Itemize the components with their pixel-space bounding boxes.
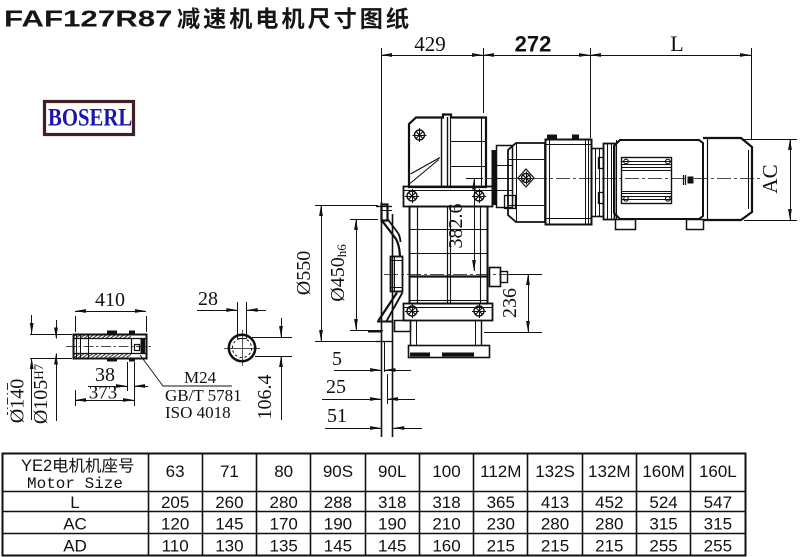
svg-text:318: 318	[378, 493, 406, 512]
svg-text:236: 236	[499, 288, 521, 318]
svg-text:160M: 160M	[642, 462, 685, 481]
svg-text:280: 280	[595, 515, 623, 534]
svg-text:365: 365	[487, 493, 515, 512]
svg-text:170: 170	[269, 515, 297, 534]
svg-text:160L: 160L	[699, 462, 737, 481]
svg-text:288: 288	[324, 493, 352, 512]
svg-text:120: 120	[161, 515, 189, 534]
svg-text:413: 413	[541, 493, 569, 512]
svg-text:280: 280	[541, 515, 569, 534]
svg-text:112M: 112M	[480, 462, 521, 481]
svg-text:429: 429	[414, 32, 446, 56]
svg-text:ISO 4018: ISO 4018	[165, 403, 231, 422]
svg-text:145: 145	[378, 537, 406, 556]
svg-text:132S: 132S	[535, 462, 575, 481]
svg-text:BOSERL: BOSERL	[48, 104, 132, 131]
svg-text:80: 80	[274, 462, 293, 481]
svg-text:145: 145	[215, 515, 243, 534]
svg-text:547: 547	[704, 493, 732, 512]
svg-text:M24: M24	[184, 368, 217, 387]
svg-text:190: 190	[378, 515, 406, 534]
svg-text:373: 373	[89, 383, 118, 404]
svg-text:Ø550: Ø550	[293, 251, 315, 295]
svg-text:280: 280	[269, 493, 297, 512]
svg-text:110: 110	[162, 537, 189, 556]
svg-text:190: 190	[324, 515, 352, 534]
svg-text:215: 215	[487, 537, 515, 556]
svg-text:28: 28	[198, 288, 218, 310]
svg-text:100: 100	[432, 462, 460, 481]
svg-text:382.6: 382.6	[445, 204, 467, 249]
svg-text:272: 272	[515, 32, 552, 57]
svg-text:90S: 90S	[323, 462, 353, 481]
svg-text:210: 210	[432, 515, 460, 534]
svg-text:AC: AC	[63, 515, 87, 534]
svg-text:160: 160	[432, 537, 460, 556]
svg-text:132M: 132M	[588, 462, 631, 481]
svg-text:205: 205	[161, 493, 189, 512]
svg-text:90L: 90L	[378, 462, 406, 481]
svg-text:Motor Size: Motor Size	[27, 475, 123, 493]
svg-text:524: 524	[649, 493, 677, 512]
svg-text:71: 71	[220, 462, 239, 481]
svg-text:410: 410	[95, 289, 125, 311]
svg-text:215: 215	[541, 537, 569, 556]
svg-text:315: 315	[649, 515, 677, 534]
svg-text:63: 63	[166, 462, 185, 481]
svg-text:318: 318	[432, 493, 460, 512]
svg-text:452: 452	[595, 493, 623, 512]
svg-text:230: 230	[487, 515, 515, 534]
svg-text:130: 130	[215, 537, 243, 556]
svg-text:L: L	[670, 31, 683, 56]
svg-text:255: 255	[704, 537, 732, 556]
svg-text:255: 255	[649, 537, 677, 556]
svg-text:FAF127R87: FAF127R87	[4, 6, 173, 32]
svg-text:106.4: 106.4	[254, 375, 276, 420]
svg-text:215: 215	[595, 537, 623, 556]
svg-text:AD: AD	[63, 537, 87, 556]
svg-text:YE2: YE2	[21, 457, 52, 475]
svg-text:AC: AC	[758, 164, 782, 193]
svg-text:25: 25	[326, 376, 346, 398]
svg-text:315: 315	[704, 515, 732, 534]
svg-text:51: 51	[327, 405, 347, 427]
svg-text:135: 135	[269, 537, 297, 556]
svg-text:Ø140: Ø140	[7, 379, 29, 423]
svg-text:L: L	[70, 493, 79, 512]
svg-text:5: 5	[332, 348, 342, 370]
svg-text:145: 145	[324, 537, 352, 556]
svg-text:260: 260	[215, 493, 243, 512]
